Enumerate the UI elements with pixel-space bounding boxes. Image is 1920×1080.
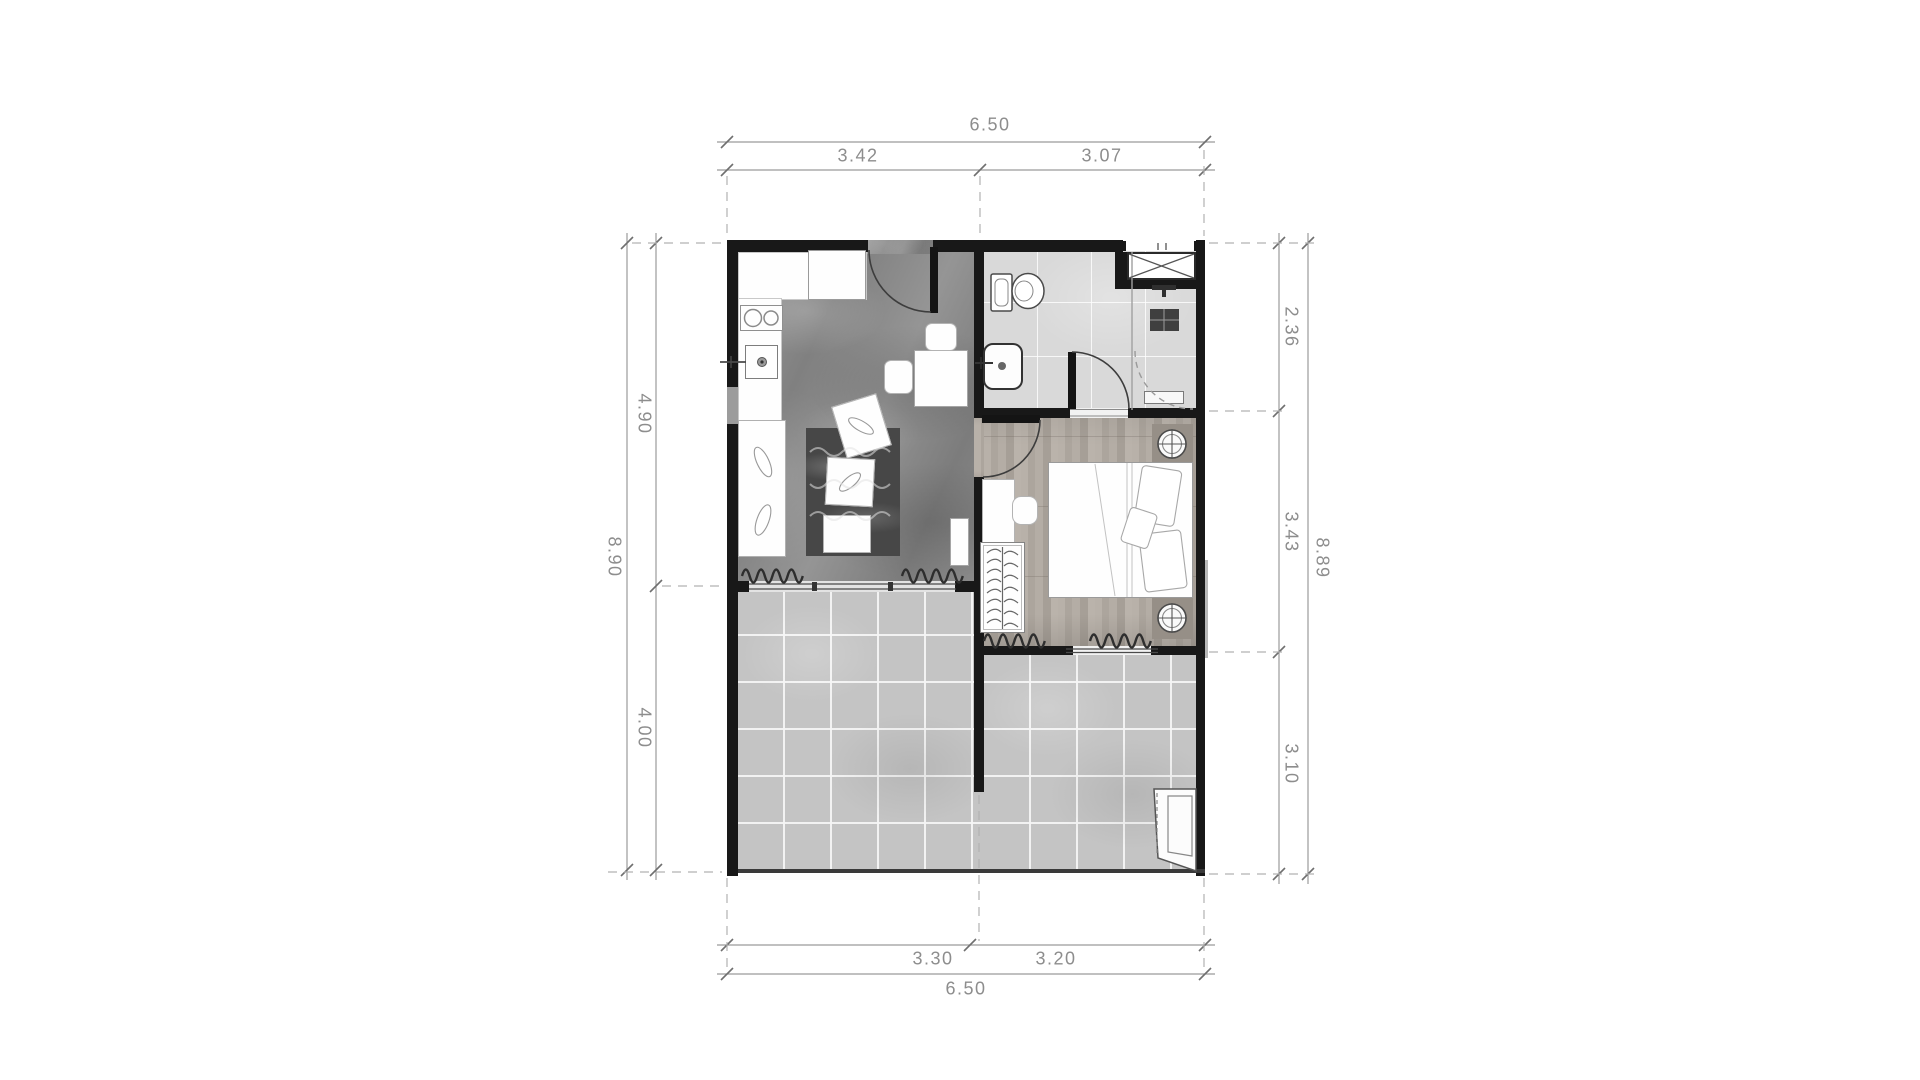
dashed-reference-lines [608,150,1316,970]
dim-right-total: 8.89 [1312,537,1333,578]
dim-left-segment-top: 4.90 [634,393,655,434]
dim-right-segment-bottom: 3.10 [1281,743,1302,784]
plan-vector-overlay [0,0,1920,1080]
dim-top-total: 6.50 [969,115,1010,136]
shower-door-swing [1132,252,1193,410]
bedroom-door [982,415,1040,477]
bed-pillows [1120,465,1187,592]
nightstand-lamp-bottom-icon [1157,603,1187,633]
toilet [991,274,1044,312]
cooktop-burners-icon [745,310,779,327]
nightstand-lamp-top-icon [1157,429,1187,459]
cushion-leaves [751,415,876,537]
dim-bottom-segment-right: 3.20 [1035,949,1076,970]
shower-head-icon [1152,285,1176,297]
dim-right-segment-middle: 3.43 [1281,511,1302,552]
kitchen-sink-drain-icon [720,356,767,368]
dim-right-segment-top: 2.36 [1281,306,1302,347]
wardrobe-hangers-icon [984,546,1022,630]
dim-top-segment-left: 3.42 [837,146,878,167]
dimension-lines [627,142,1308,974]
shaft-cross-icon [1129,243,1194,278]
terrace-ac-unit [1154,789,1196,871]
dim-bottom-segment-left: 3.30 [912,949,953,970]
floor-plan-page: 6.50 3.42 3.07 3.30 3.20 6.50 4.90 4.00 … [0,0,1920,1080]
shower-drain-grid [1150,309,1179,331]
bath-threshold-lines [1070,410,1128,417]
curtain-waves [742,570,1151,648]
bathroom-door [1068,352,1129,410]
dim-left-segment-bottom: 4.00 [634,707,655,748]
dim-top-segment-right: 3.07 [1081,146,1122,167]
dim-left-total: 8.90 [604,536,625,577]
entry-door [869,247,938,313]
dimension-ticks [621,136,1314,980]
dim-bottom-total: 6.50 [945,979,986,1000]
bathroom-sink [975,344,1022,389]
